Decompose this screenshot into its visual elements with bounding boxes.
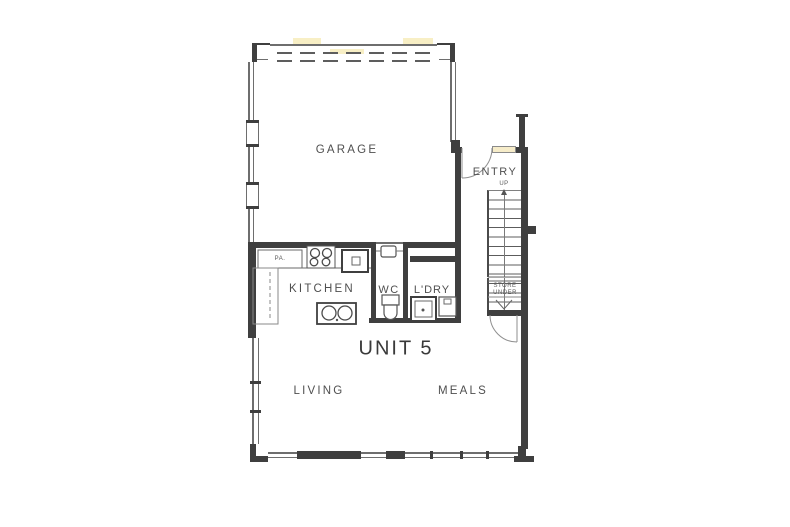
window-mullion: [460, 451, 463, 459]
window-cap: [246, 182, 259, 185]
wall-wc-laundry: [403, 242, 408, 323]
toilet-cistern: [382, 295, 399, 305]
laundry-trough-bowl: [415, 301, 432, 317]
wall-left-inner: [253, 62, 254, 120]
wall-right-nib: [519, 116, 525, 147]
wall-wc-top-line: [376, 242, 406, 244]
wall-right-nib-cap: [516, 114, 528, 117]
store-label-line1: STORE: [493, 283, 516, 289]
window-bottom-2: [361, 457, 386, 458]
wall-garage-top-line: [270, 44, 437, 46]
pantry-tall-cabinet: [253, 268, 278, 324]
pillar-top-right: [450, 43, 455, 62]
window-cap: [246, 120, 259, 123]
pillar-top-left-cap: [252, 43, 270, 45]
corner-bottom-left: [250, 456, 268, 462]
scan-highlight: [330, 49, 364, 54]
washing-machine-symbol: [444, 299, 451, 304]
room-label-laundry: L'DRY: [414, 284, 450, 296]
wall-right-pier: [528, 226, 536, 234]
fridge: [342, 250, 368, 272]
laundry-bench: [410, 256, 456, 262]
fixtures-overlay: [0, 0, 790, 527]
wall-entry-top-right: [516, 147, 528, 153]
window-left-2: [246, 182, 259, 209]
wall-left-outer: [248, 62, 250, 120]
pillar-top-right-cap: [437, 43, 455, 45]
wall-left-inner: [253, 209, 254, 242]
washing-machine: [439, 297, 456, 316]
wall-left-kitchen: [248, 242, 256, 338]
wall-stair-bottom: [487, 310, 522, 316]
pillar-top-right-inner: [439, 59, 450, 60]
island-bench: [317, 303, 356, 324]
wall-garage-right-outer: [450, 62, 452, 142]
sink-bowl: [338, 306, 352, 320]
wall-left-living-outer: [252, 338, 254, 444]
unit-title: UNIT 5: [359, 338, 434, 361]
wall-wc-left: [371, 242, 376, 323]
wall-laundry-garage: [406, 242, 455, 248]
wall-garage-right-inner: [455, 62, 456, 142]
cooktop-burner: [310, 258, 318, 266]
stair-up-label: UP: [499, 181, 508, 187]
fridge-symbol: [352, 257, 360, 265]
window-bottom-1: [268, 452, 298, 454]
room-label-wc: WC: [378, 284, 399, 296]
window-left-1: [246, 120, 259, 147]
cooktop-burner: [311, 249, 320, 258]
sliding-door-panel: [386, 451, 405, 459]
entry-door-sidelight: [492, 146, 516, 153]
stair-up-arrow: [501, 189, 507, 195]
wall-left-outer: [248, 209, 250, 242]
wall-wc-laundry-bottom: [369, 318, 461, 323]
floor-plan: GARAGE ENTRY UP KITCHEN WC L'DRY STORE U…: [0, 0, 790, 527]
cooktop-burner: [322, 258, 330, 266]
window-bottom-1: [268, 457, 298, 458]
store-door-arc: [490, 315, 517, 342]
wc-basin: [381, 246, 396, 257]
wall-left-living-inner: [258, 338, 259, 444]
sink-bowl: [322, 306, 336, 320]
wall-left-outer: [248, 147, 250, 182]
store-divider-gap: [487, 277, 521, 278]
window-mullion: [250, 410, 261, 413]
pillar-top-left-inner: [257, 59, 268, 60]
window-mullion: [250, 381, 261, 384]
cooktop: [307, 246, 335, 268]
room-label-garage: GARAGE: [316, 144, 378, 156]
window-mullion: [430, 451, 433, 459]
wall-entry-internal: [455, 152, 461, 323]
pantry-label: PA.: [275, 256, 286, 262]
room-label-meals: MEALS: [438, 385, 488, 397]
cooktop-burner: [323, 249, 332, 258]
store-label-line2: UNDER: [493, 290, 517, 296]
room-label-kitchen: KITCHEN: [289, 283, 355, 295]
sink-tap: [336, 319, 338, 321]
wall-right: [521, 147, 528, 449]
wall-left-inner: [253, 147, 254, 182]
room-label-entry: ENTRY: [473, 166, 518, 178]
window-bottom-2: [361, 452, 386, 454]
wall-kitchen-garage: [250, 242, 376, 248]
room-label-living: LIVING: [294, 385, 345, 397]
corner-bottom-right: [514, 456, 534, 462]
laundry-trough-drain: [422, 309, 425, 312]
sliding-door-panel: [297, 451, 361, 459]
window-mullion: [486, 451, 489, 459]
